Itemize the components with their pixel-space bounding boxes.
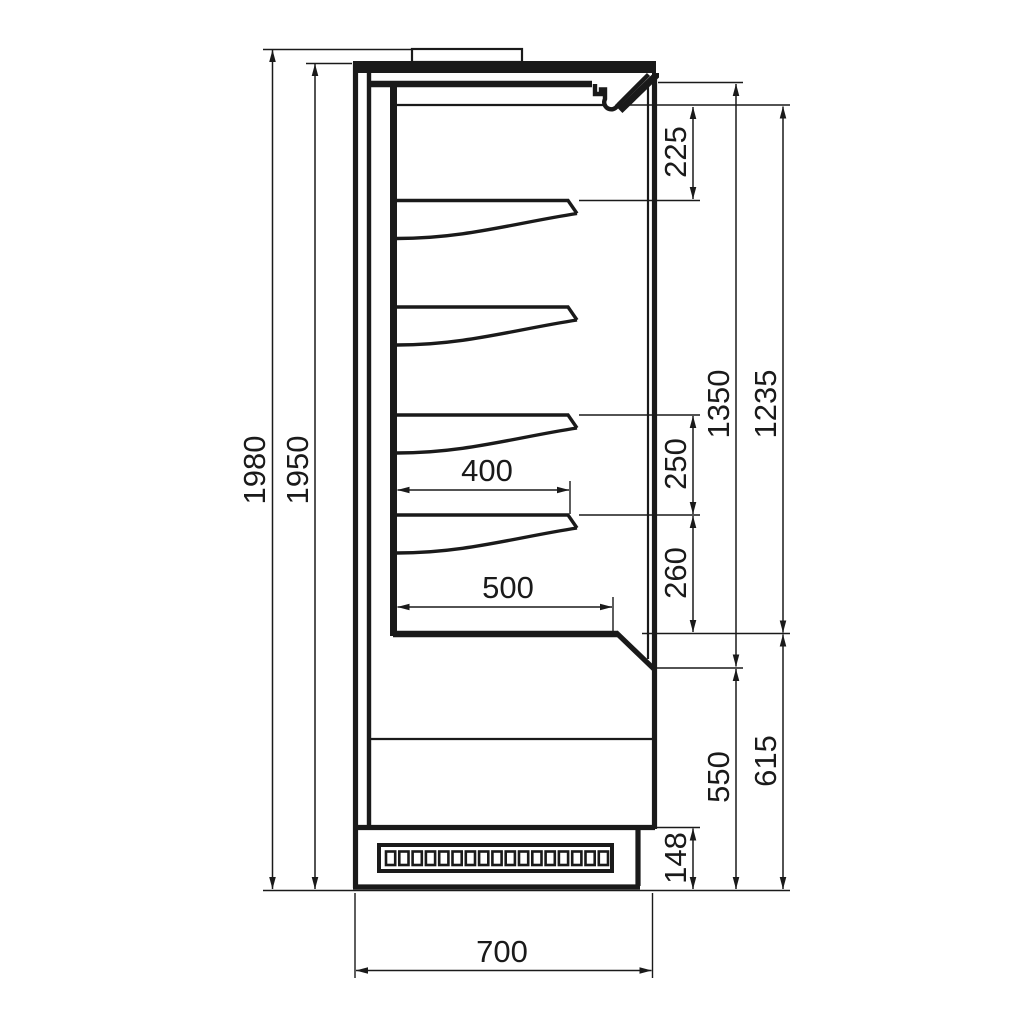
label-display-opening-total: 1350 [701,370,736,439]
grille-slot [399,852,408,866]
label-base-front-height: 550 [701,751,736,803]
label-display-opening-inner: 1235 [748,370,783,439]
label-shelf-gap-lower: 260 [658,547,693,599]
grille-slots [386,852,608,866]
top-cap-plate [412,49,522,62]
label-top-opening: 225 [658,126,693,178]
label-overall-depth: 700 [476,934,528,969]
grille-slot [506,852,515,866]
shelf-3 [394,415,577,453]
grille-slot [586,852,595,866]
grille-slot [426,852,435,866]
grille-slot [453,852,462,866]
grille-slot [559,852,568,866]
grille-slot [546,852,555,866]
grille-slot [599,852,608,866]
grille-slot [492,852,501,866]
grille-slot [519,852,528,866]
label-base-section-height: 615 [748,735,783,787]
grille-slot [439,852,448,866]
label-shelf-gap-upper: 250 [658,438,693,490]
label-deck-depth: 500 [482,570,534,605]
ventilation-grille [379,845,612,871]
grille-slot [572,852,581,866]
label-overall-height: 1980 [237,436,272,505]
grille-slot [413,852,422,866]
label-plinth-height: 148 [658,832,693,884]
grille-slot [386,852,395,866]
grille-slot [466,852,475,866]
top-panel [353,61,656,73]
shelf-1 [394,201,577,239]
shelf-2 [394,307,577,345]
label-shelf-depth: 400 [461,453,513,488]
cabinet-section-drawing: 1980 1950 225 250 260 148 1350 550 1235 … [0,0,1024,1024]
dimension-lines [273,50,784,971]
grille-slot [479,852,488,866]
shelf-4 [394,515,577,553]
dimension-labels: 1980 1950 225 250 260 148 1350 550 1235 … [237,126,783,969]
technical-drawing-page: 1980 1950 225 250 260 148 1350 550 1235 … [0,0,1024,1024]
grille-slot [532,852,541,866]
label-body-height: 1950 [280,436,315,505]
